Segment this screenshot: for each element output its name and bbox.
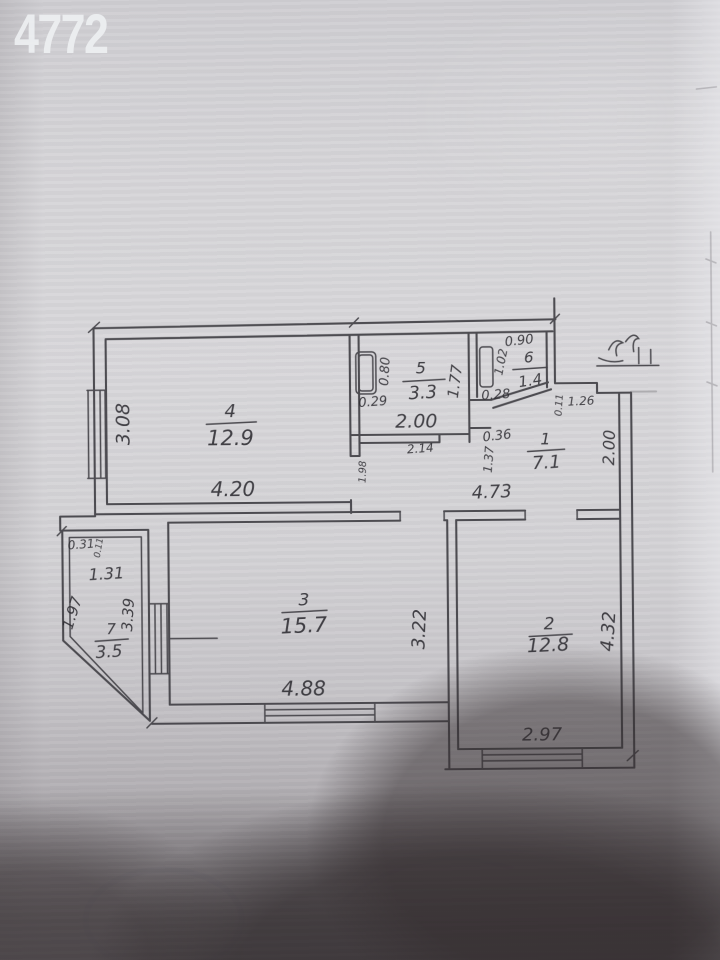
dim-room3-bottom: 4.88: [281, 676, 326, 700]
room6-fraction-line: [513, 367, 547, 369]
plan-walls: [53, 87, 720, 773]
room3-number: 3: [298, 590, 309, 610]
room2-number: 2: [544, 614, 555, 634]
wall-landing: [546, 298, 597, 393]
dim-hall-left: 1.37: [481, 445, 497, 473]
room7-fraction-line: [95, 639, 128, 641]
dim-room7-top: 1.31: [88, 563, 125, 584]
outer-wall-top: [93, 319, 555, 328]
dim-room7-top-small: 0.31: [67, 536, 95, 552]
room1-area: 7.1: [531, 452, 561, 475]
dim-hall-entry: 1.26: [567, 393, 595, 408]
dim-room6-diag: 0.36: [482, 427, 512, 445]
dim-hall-bottom: 4.73: [471, 481, 512, 504]
room5-area: 3.3: [408, 382, 438, 405]
window-room3: [265, 703, 375, 723]
room4-fraction-line: [206, 422, 256, 424]
dim-room6-top: 0.90: [504, 332, 534, 350]
dim-room5-bottom: 2.00: [395, 410, 438, 432]
room7-number: 7: [106, 620, 116, 638]
window-room4: [87, 390, 107, 478]
dim-room5-fixture-h: 0.80: [377, 357, 394, 387]
window-room7: [149, 604, 170, 674]
dim-room4-bottom: 4.20: [211, 477, 256, 501]
room4-number: 4: [224, 401, 236, 422]
photo-watermark: 4772: [14, 6, 107, 62]
dim-room5-right: 1.77: [444, 363, 466, 399]
dim-room4-left: 3.08: [112, 403, 134, 446]
floorplan-drawing: 4 12.9 4.20 3.08 5 3.3 0.80 0.29 1.77 2.…: [0, 0, 720, 960]
dim-room6-left: 1.02: [491, 347, 510, 376]
dim-hall-wall-small: 0.11: [554, 394, 566, 417]
fixture-room6: [480, 347, 493, 387]
stamp-remnant: [85, 859, 514, 960]
dim-room2-right: 4.32: [597, 611, 620, 652]
dim-hall-right: 2.00: [599, 430, 619, 466]
room1-number: 1: [540, 429, 550, 448]
room2-area: 12.8: [526, 633, 569, 657]
dim-room7-top-tiny: 0.11: [93, 537, 106, 558]
dim-room2-bottom: 2.97: [522, 724, 563, 745]
room4-area: 12.9: [207, 426, 254, 450]
dim-room7-right: 3.39: [118, 597, 138, 631]
wall-room2-room3: [447, 520, 458, 769]
room6-area: 1.4: [517, 370, 543, 391]
dim-hall-door: 1.98: [357, 461, 369, 484]
dim-room3-right: 3.22: [408, 609, 431, 650]
wall-hall-bottom: [95, 510, 620, 515]
dim-room5-fixture-w: 0.29: [358, 394, 388, 411]
room6-number: 6: [524, 348, 534, 366]
room3-area: 15.7: [280, 612, 328, 638]
dim-room5-below: 2.14: [406, 440, 434, 456]
dim-room6-fixture: 0.28: [481, 387, 511, 404]
room5-number: 5: [416, 358, 426, 377]
room7-area: 3.5: [95, 641, 123, 663]
paper-edge-marks: [696, 87, 719, 472]
room5-fraction-line: [403, 379, 445, 381]
entry-handwritten-mark: [597, 335, 659, 366]
window-room2: [482, 748, 582, 769]
floorplan-photo: 4 12.9 4.20 3.08 5 3.3 0.80 0.29 1.77 2.…: [0, 0, 720, 960]
